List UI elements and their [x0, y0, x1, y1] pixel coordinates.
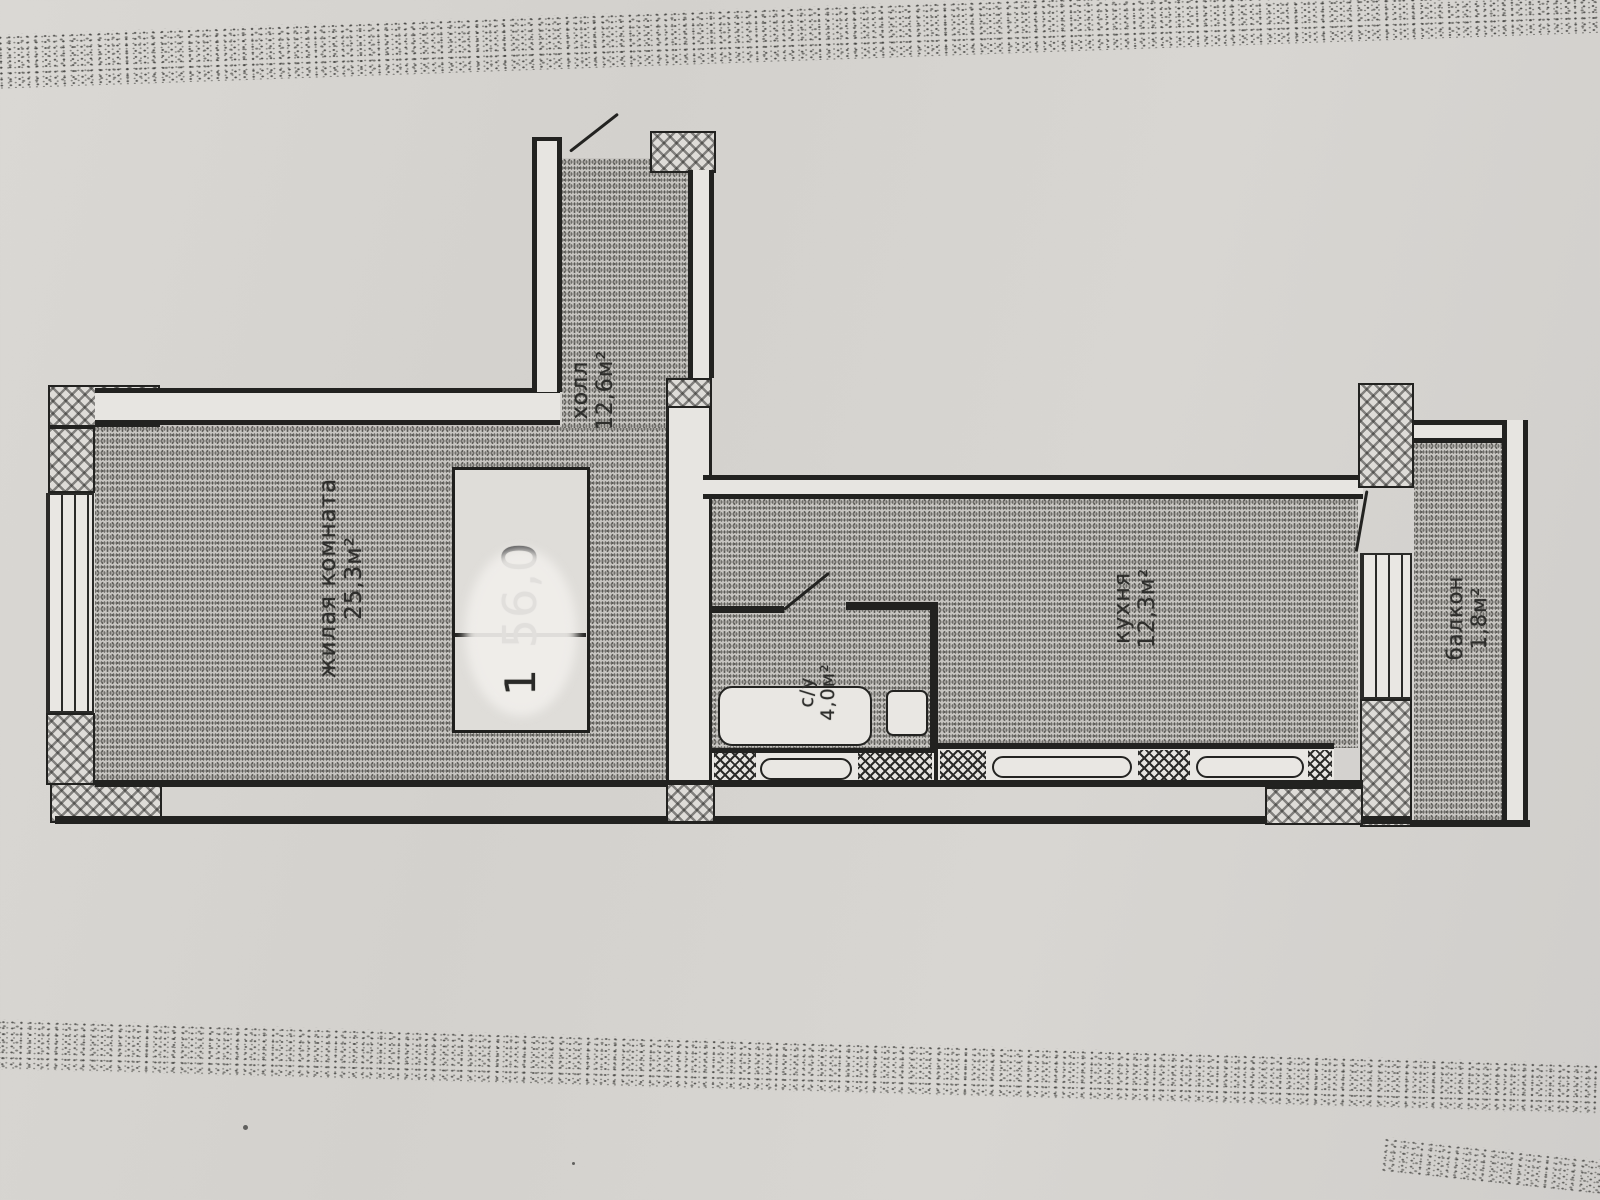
wall-hatch-left-upper [48, 427, 95, 493]
sink-symbol [886, 690, 928, 736]
stamp-apartment-number: 1 [496, 632, 546, 732]
wall-hall-bathroom-divider [666, 408, 712, 785]
radiator-symbol [1196, 756, 1304, 778]
entrance-door-swing [569, 113, 619, 153]
radiator-symbol [760, 758, 852, 780]
room-area: 4,0м² [818, 663, 839, 720]
living-room-label: жилая комната 25,3м² [316, 483, 368, 673]
scanned-floorplan-photo: { "plan": { "rooms": [ {"id": "living-ro… [0, 0, 1600, 1200]
room-area: 12,3м² [1136, 568, 1161, 648]
wall-hall-right [688, 170, 714, 378]
room-name: балкон [1444, 576, 1468, 661]
bathtub-symbol [718, 686, 872, 746]
wall-hatch-kitchen-balcony-top [1358, 383, 1414, 488]
room-name: кухня [1111, 572, 1136, 644]
room-name: холл [569, 361, 594, 420]
radiator-symbol [992, 756, 1132, 778]
wall-hatch-hall-right [666, 378, 712, 408]
wall-bottom-outer-line [55, 816, 1412, 824]
wall-hatch-kitchen-bottom-right [1265, 787, 1363, 825]
hall-label: холл 12,6м² [570, 335, 618, 445]
wall-hatch-left-lower [46, 713, 95, 785]
wall-corridor-top [703, 475, 1363, 499]
wall-bathroom-top-right [846, 602, 938, 610]
wall-bathroom-top-left [712, 606, 784, 613]
wall-hatch-hall-bottom [666, 783, 715, 823]
balcony-label: балкон 1,8м² [1445, 563, 1491, 673]
room-area: 1,8м² [1468, 587, 1492, 650]
sill-hatch [1138, 750, 1190, 783]
wall-hall-left [532, 137, 562, 392]
floor-plan: 56,0 1 жилая комната 25,3м² холл 12,6м² … [0, 0, 1600, 1200]
balcony-bottom-line [1412, 820, 1530, 827]
wall-hatch-entrance [650, 131, 716, 173]
wall-living-room-top [95, 388, 560, 425]
living-room-window [46, 493, 94, 713]
sill-hatch [1308, 750, 1332, 783]
wall-bottom-inner-line [95, 780, 1363, 787]
kitchen-balcony-window [1360, 553, 1412, 699]
wall-hatch-kitchen-balcony-bottom [1360, 699, 1412, 827]
wall-balcony-right [1502, 420, 1528, 825]
kitchen-label: кухня 12,3м² [1112, 553, 1160, 663]
room-name: с/у [797, 676, 818, 707]
room-area: 12,6м² [594, 350, 619, 430]
room-name: жилая комната [316, 478, 342, 679]
bathroom-label: с/у 4,0м² [797, 647, 839, 737]
sill-hatch [940, 750, 986, 783]
room-area: 25,3м² [342, 536, 368, 620]
